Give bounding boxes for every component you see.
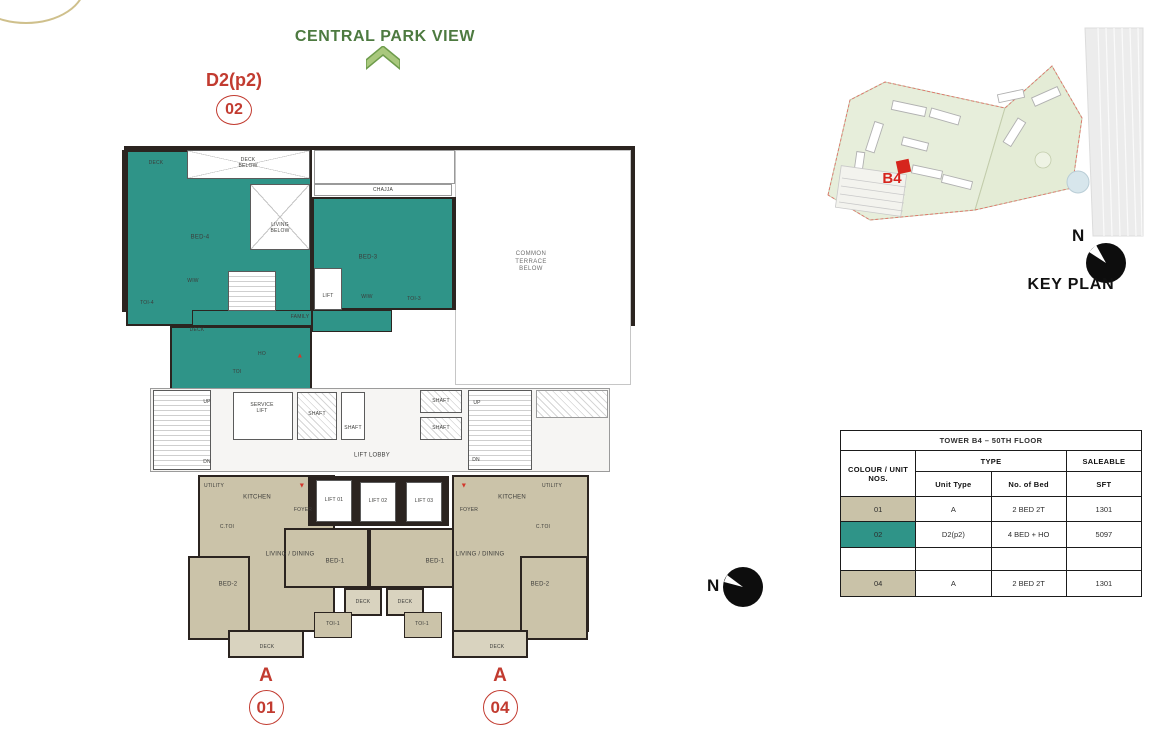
- row4-unit: 04: [841, 571, 916, 597]
- row2-unit: 02: [841, 522, 916, 548]
- unit-04-type-label: A: [460, 665, 540, 687]
- row2-beds: 4 BED + HO: [991, 522, 1066, 548]
- table-row: 04 A 2 BED 2T 1301: [841, 571, 1142, 597]
- table-row: 01 A 2 BED 2T 1301: [841, 497, 1142, 522]
- site-compass-icon: [723, 567, 763, 607]
- plan-room-label: C.TOI: [220, 524, 234, 530]
- plan-room-label: SHAFT: [308, 411, 325, 417]
- table-title: TOWER B4 – 50TH FLOOR: [841, 431, 1142, 451]
- row4-beds: 2 BED 2T: [991, 571, 1066, 597]
- plan-room-label: FAMILY: [291, 314, 310, 320]
- table-row: 02 D2(p2) 4 BED + HO 5097: [841, 522, 1142, 548]
- plan-room-label: DECK: [356, 599, 371, 605]
- plan-room-label: FOYER: [460, 507, 478, 513]
- plan-room-label: TOI-3: [407, 296, 421, 302]
- plan-room-label: LIVING BELOW: [270, 222, 289, 235]
- row1-unit: 01: [841, 497, 916, 522]
- plan-room-label: DECK: [398, 599, 413, 605]
- plan-room-label: DECK: [149, 160, 164, 166]
- plan-room-label: BED-3: [359, 254, 378, 262]
- plan-room-label: BED-1: [326, 558, 345, 566]
- plan-room-label: UTILITY: [204, 483, 224, 489]
- col-colour-unit: COLOUR / UNIT NOS.: [841, 451, 916, 497]
- col-type: TYPE: [916, 451, 1067, 472]
- plan-room-label: KITCHEN: [243, 494, 271, 502]
- col-no-of-bed: No. of Bed: [991, 472, 1066, 497]
- row3-unit: [841, 548, 916, 571]
- plan-room-label: BED-2: [531, 581, 550, 589]
- plan-room-label: SHAFT: [432, 425, 449, 431]
- plan-room-label: LIFT 01: [325, 497, 344, 503]
- plan-room-label: LIFT LOBBY: [354, 452, 390, 460]
- plan-room-label: BED-1: [426, 558, 445, 566]
- plan-room-label: CHAJJA: [373, 187, 393, 193]
- plan-room-label: TOI-1: [415, 621, 429, 627]
- entry-marker-icon: ▼: [460, 483, 467, 492]
- unit-01-type-label: A: [226, 665, 306, 687]
- keyplan-title: KEY PLAN: [1016, 276, 1126, 294]
- plan-room-label: FOYER: [294, 507, 312, 513]
- row3-sft: [1066, 548, 1141, 571]
- row1-type: A: [916, 497, 991, 522]
- unit-01-callout: A 01: [226, 665, 306, 725]
- plan-room-label: COMMON TERRACE BELOW: [515, 251, 546, 274]
- plan-room-label: LIVING / DINING: [456, 551, 505, 559]
- plan-room-label: LIFT 02: [369, 498, 388, 504]
- keyplan-north-label: N: [1072, 226, 1084, 246]
- plan-room-label: LIVING / DINING: [266, 551, 315, 559]
- plan-room-label: SHAFT: [344, 425, 361, 431]
- entry-marker-icon: ▲: [296, 353, 303, 362]
- plan-room-label: C.TOI: [536, 524, 550, 530]
- plan-room-label: UP: [473, 400, 480, 406]
- plan-room-label: DN: [472, 457, 480, 463]
- plan-room-label: LIFT: [322, 293, 333, 299]
- plan-room-label: DECK: [190, 327, 205, 333]
- row1-sft: 1301: [1066, 497, 1141, 522]
- plan-room-label: DECK: [260, 644, 275, 650]
- row3-type: [916, 548, 991, 571]
- site-north-label: N: [707, 576, 719, 596]
- plan-room-label: KITCHEN: [498, 494, 526, 502]
- col-sft: SFT: [1066, 472, 1141, 497]
- row2-sft: 5097: [1066, 522, 1141, 548]
- floorplan-page: CENTRAL PARK VIEW D2(p2) 02: [0, 0, 1160, 738]
- row1-beds: 2 BED 2T: [991, 497, 1066, 522]
- plan-room-label: SHAFT: [432, 398, 449, 404]
- plan-room-label: SERVICE LIFT: [250, 402, 273, 415]
- entry-marker-icon: ▼: [298, 483, 305, 492]
- plan-room-label: DN: [203, 459, 211, 465]
- plan-room-label: HO: [258, 351, 266, 357]
- row3-beds: [991, 548, 1066, 571]
- col-unit-type: Unit Type: [916, 472, 991, 497]
- plan-room-label: UP: [203, 399, 210, 405]
- tower-b4-label: B4: [872, 170, 912, 187]
- row4-sft: 1301: [1066, 571, 1141, 597]
- unit-01-number-badge: 01: [249, 690, 284, 725]
- plan-room-label: WIW: [361, 294, 372, 300]
- row2-type: D2(p2): [916, 522, 991, 548]
- unit-04-callout: A 04: [460, 665, 540, 725]
- plan-room-label: LIFT 03: [415, 498, 434, 504]
- plan-room-label: BED-4: [191, 234, 210, 242]
- plan-room-label: TOI: [233, 369, 242, 375]
- plan-room-label: UTILITY: [542, 483, 562, 489]
- key-plan-map: [820, 24, 1148, 240]
- plan-room-label: DECK BELOW: [238, 157, 257, 170]
- plan-room-label: TOI-4: [140, 300, 154, 306]
- plan-room-label: TOI-1: [326, 621, 340, 627]
- table-row: [841, 548, 1142, 571]
- row4-type: A: [916, 571, 991, 597]
- unit-04-number-badge: 04: [483, 690, 518, 725]
- plan-room-label: DECK: [490, 644, 505, 650]
- col-saleable: SALEABLE: [1066, 451, 1141, 472]
- unit-table: TOWER B4 – 50TH FLOOR COLOUR / UNIT NOS.…: [840, 430, 1142, 597]
- plan-room-label: WIW: [187, 278, 198, 284]
- plan-room-label: BED-2: [219, 581, 238, 589]
